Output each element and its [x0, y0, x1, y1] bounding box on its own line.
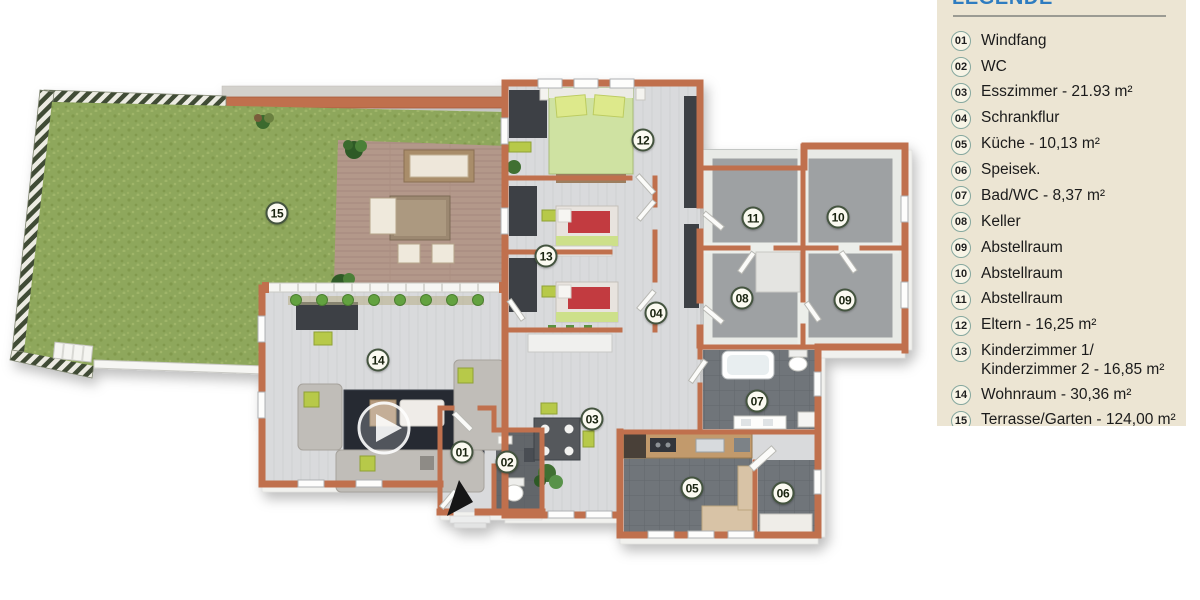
- legend-item-06: 06Speisek.: [951, 157, 1182, 183]
- legend-item-07: 07Bad/WC - 8,37 m²: [951, 183, 1182, 209]
- legend-item-label: Kinderzimmer 1/Kinderzimmer 2 - 16,85 m²: [981, 341, 1164, 379]
- legend-item-number: 15: [951, 411, 971, 426]
- legend-item-label: WC: [981, 57, 1007, 76]
- legend-divider: [953, 15, 1166, 17]
- legend-item-label: Speisek.: [981, 160, 1040, 179]
- entrance-step: [450, 516, 490, 523]
- wall-face-bottom-5: [818, 350, 905, 358]
- legend-item-number: 08: [951, 212, 971, 232]
- legend-item-04: 04Schrankflur: [951, 106, 1182, 132]
- legend-item-label: Schrankflur: [981, 108, 1059, 127]
- legend-item-number: 01: [951, 31, 971, 51]
- legend-item-02: 02WC: [951, 54, 1182, 80]
- legend-item-10: 10Abstellraum: [951, 261, 1182, 287]
- legend-item-01: 01Windfang: [951, 28, 1182, 54]
- legend-item-08: 08Keller: [951, 209, 1182, 235]
- legend-item-05: 05Küche - 10,13 m²: [951, 132, 1182, 158]
- legend-item-number: 10: [951, 264, 971, 284]
- floorplan-svg: [0, 0, 935, 600]
- legend-item-number: 11: [951, 290, 971, 310]
- legend-item-label: Esszimmer - 21.93 m²: [981, 82, 1133, 101]
- legend-item-label: Abstellraum: [981, 238, 1063, 257]
- legend-item-number: 07: [951, 186, 971, 206]
- plant: [507, 160, 521, 174]
- washer: [798, 412, 815, 427]
- legend-item-label: Abstellraum: [981, 289, 1063, 308]
- legend-item-number: 13: [951, 342, 971, 362]
- legend-panel: LEGENDE 01Windfang02WC03Esszimmer - 21.9…: [937, 0, 1186, 426]
- legend-item-12: 12Eltern - 16,25 m²: [951, 313, 1182, 339]
- legend-list: 01Windfang02WC03Esszimmer - 21.93 m²04Sc…: [951, 28, 1182, 426]
- terrace-deck: [331, 140, 508, 294]
- legend-item-label: Abstellraum: [981, 264, 1063, 283]
- legend-item-label: Terrasse/Garten - 124,00 m²: [981, 410, 1176, 426]
- sideboard: [528, 334, 612, 352]
- legend-title: LEGENDE: [952, 0, 1053, 8]
- sink: [696, 439, 724, 452]
- legend-item-number: 06: [951, 161, 971, 181]
- tv-sideboard: [296, 302, 358, 330]
- legend-item-03: 03Esszimmer - 21.93 m²: [951, 80, 1182, 106]
- entrance-step-2: [454, 523, 486, 528]
- legend-item-09: 09Abstellraum: [951, 235, 1182, 261]
- legend-item-15: 15Terrasse/Garten - 124,00 m²: [951, 408, 1182, 426]
- legend-item-number: 14: [951, 385, 971, 405]
- legend-item-label: Wohnraum - 30,36 m²: [981, 385, 1131, 404]
- floorplan-rendering: 010203040506070809101112131415: [0, 0, 935, 600]
- legend-item-number: 05: [951, 135, 971, 155]
- window-plants-row: [288, 295, 484, 306]
- legend-item-label: Bad/WC - 8,37 m²: [981, 186, 1105, 205]
- floorplan-page: 010203040506070809101112131415 LEGENDE 0…: [0, 0, 1200, 600]
- garden-wall-top: [222, 97, 508, 108]
- legend-item-number: 09: [951, 238, 971, 258]
- play-button-overlay[interactable]: [359, 403, 409, 453]
- legend-item-11: 11Abstellraum: [951, 287, 1182, 313]
- pantry-shelf: [760, 514, 812, 532]
- legend-item-number: 02: [951, 57, 971, 77]
- legend-item-label: Eltern - 16,25 m²: [981, 315, 1096, 334]
- legend-item-14: 14Wohnraum - 30,36 m²: [951, 382, 1182, 408]
- legend-item-label: Windfang: [981, 31, 1046, 50]
- cellar-stair-block: [756, 252, 800, 292]
- garden-gate: [53, 342, 92, 362]
- legend-item-number: 03: [951, 83, 971, 103]
- legend-item-label: Keller: [981, 212, 1021, 231]
- legend-item-13: 13Kinderzimmer 1/Kinderzimmer 2 - 16,85 …: [951, 339, 1182, 382]
- kid-bed-2: [556, 282, 618, 322]
- stove: [650, 438, 676, 452]
- pantry-06: [760, 514, 812, 532]
- legend-item-label: Küche - 10,13 m²: [981, 134, 1100, 153]
- legend-item-number: 04: [951, 109, 971, 129]
- legend-item-number: 12: [951, 316, 971, 336]
- kid-bed-1: [556, 206, 618, 246]
- toilet: [789, 357, 807, 371]
